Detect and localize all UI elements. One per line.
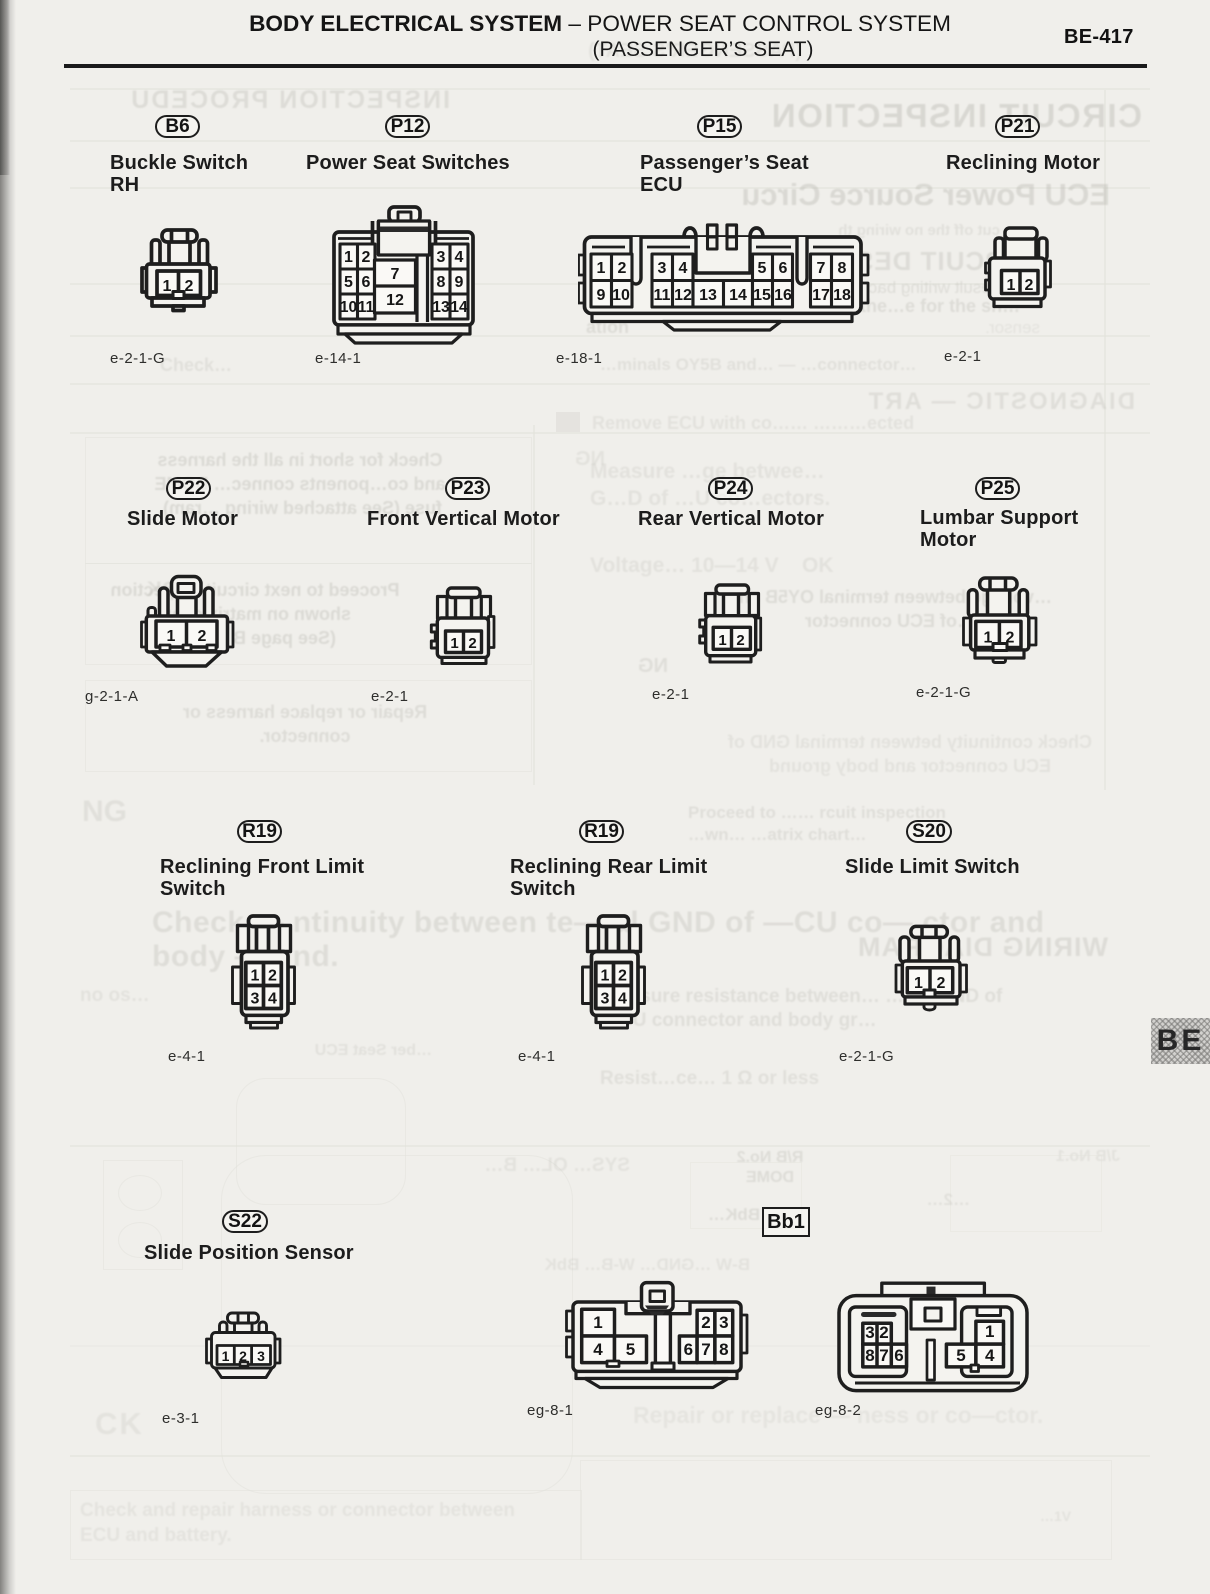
svg-text:13: 13 xyxy=(432,299,450,316)
svg-text:17: 17 xyxy=(812,287,830,304)
svg-text:18: 18 xyxy=(833,287,851,304)
svg-text:8: 8 xyxy=(865,1346,874,1365)
svg-text:12: 12 xyxy=(674,287,692,304)
svg-text:7: 7 xyxy=(879,1346,888,1365)
svg-text:2: 2 xyxy=(239,1348,247,1364)
svg-text:7: 7 xyxy=(701,1340,710,1359)
svg-text:1: 1 xyxy=(601,968,610,985)
svg-text:1: 1 xyxy=(163,278,172,295)
svg-text:1: 1 xyxy=(222,1348,230,1364)
svg-text:1: 1 xyxy=(984,630,993,647)
svg-text:7: 7 xyxy=(391,266,400,283)
svg-text:3: 3 xyxy=(865,1323,874,1342)
svg-text:4: 4 xyxy=(268,991,277,1008)
svg-text:2: 2 xyxy=(268,968,277,985)
svg-text:3: 3 xyxy=(251,991,260,1008)
svg-text:1: 1 xyxy=(344,249,353,266)
svg-text:12: 12 xyxy=(386,292,404,309)
svg-text:8: 8 xyxy=(719,1340,728,1359)
svg-text:5: 5 xyxy=(956,1346,965,1365)
svg-text:6: 6 xyxy=(362,274,371,291)
svg-text:8: 8 xyxy=(437,274,446,291)
svg-text:3: 3 xyxy=(437,249,446,266)
svg-text:16: 16 xyxy=(774,287,792,304)
svg-text:2: 2 xyxy=(618,968,627,985)
svg-text:1: 1 xyxy=(718,632,726,649)
svg-text:1: 1 xyxy=(450,635,458,652)
svg-text:1: 1 xyxy=(1007,277,1016,294)
svg-text:2: 2 xyxy=(701,1313,710,1332)
svg-text:2: 2 xyxy=(362,249,371,266)
svg-text:2: 2 xyxy=(937,975,946,992)
svg-text:9: 9 xyxy=(597,287,606,304)
svg-text:4: 4 xyxy=(985,1346,995,1365)
svg-text:4: 4 xyxy=(455,249,464,266)
svg-text:1: 1 xyxy=(914,975,923,992)
svg-text:1: 1 xyxy=(167,628,176,645)
svg-text:4: 4 xyxy=(593,1340,603,1359)
svg-text:11: 11 xyxy=(358,299,375,316)
svg-text:3: 3 xyxy=(658,260,667,277)
svg-text:2: 2 xyxy=(185,278,194,295)
svg-text:2: 2 xyxy=(618,260,627,277)
svg-text:4: 4 xyxy=(618,991,627,1008)
svg-text:15: 15 xyxy=(753,287,771,304)
svg-text:2: 2 xyxy=(198,628,207,645)
svg-text:3: 3 xyxy=(719,1313,728,1332)
svg-text:10: 10 xyxy=(612,287,630,304)
svg-text:13: 13 xyxy=(699,287,717,304)
svg-text:1: 1 xyxy=(593,1313,602,1332)
svg-text:8: 8 xyxy=(838,260,847,277)
svg-text:5: 5 xyxy=(626,1340,635,1359)
svg-text:6: 6 xyxy=(779,260,788,277)
svg-text:11: 11 xyxy=(654,287,671,304)
svg-text:5: 5 xyxy=(344,274,353,291)
svg-text:3: 3 xyxy=(257,1348,265,1364)
svg-text:2: 2 xyxy=(1006,630,1015,647)
svg-text:2: 2 xyxy=(1025,277,1034,294)
svg-text:4: 4 xyxy=(679,260,688,277)
svg-text:6: 6 xyxy=(894,1346,903,1365)
svg-text:2: 2 xyxy=(468,635,476,652)
svg-text:2: 2 xyxy=(879,1323,888,1342)
svg-text:3: 3 xyxy=(601,991,610,1008)
svg-text:2: 2 xyxy=(736,632,744,649)
svg-text:9: 9 xyxy=(455,274,464,291)
svg-text:5: 5 xyxy=(758,260,767,277)
svg-text:10: 10 xyxy=(340,299,357,316)
svg-text:1: 1 xyxy=(985,1322,994,1341)
svg-text:7: 7 xyxy=(817,260,826,277)
svg-text:14: 14 xyxy=(729,287,747,304)
svg-text:6: 6 xyxy=(684,1340,693,1359)
svg-text:1: 1 xyxy=(597,260,606,277)
svg-text:1: 1 xyxy=(251,968,260,985)
svg-text:14: 14 xyxy=(450,299,468,316)
